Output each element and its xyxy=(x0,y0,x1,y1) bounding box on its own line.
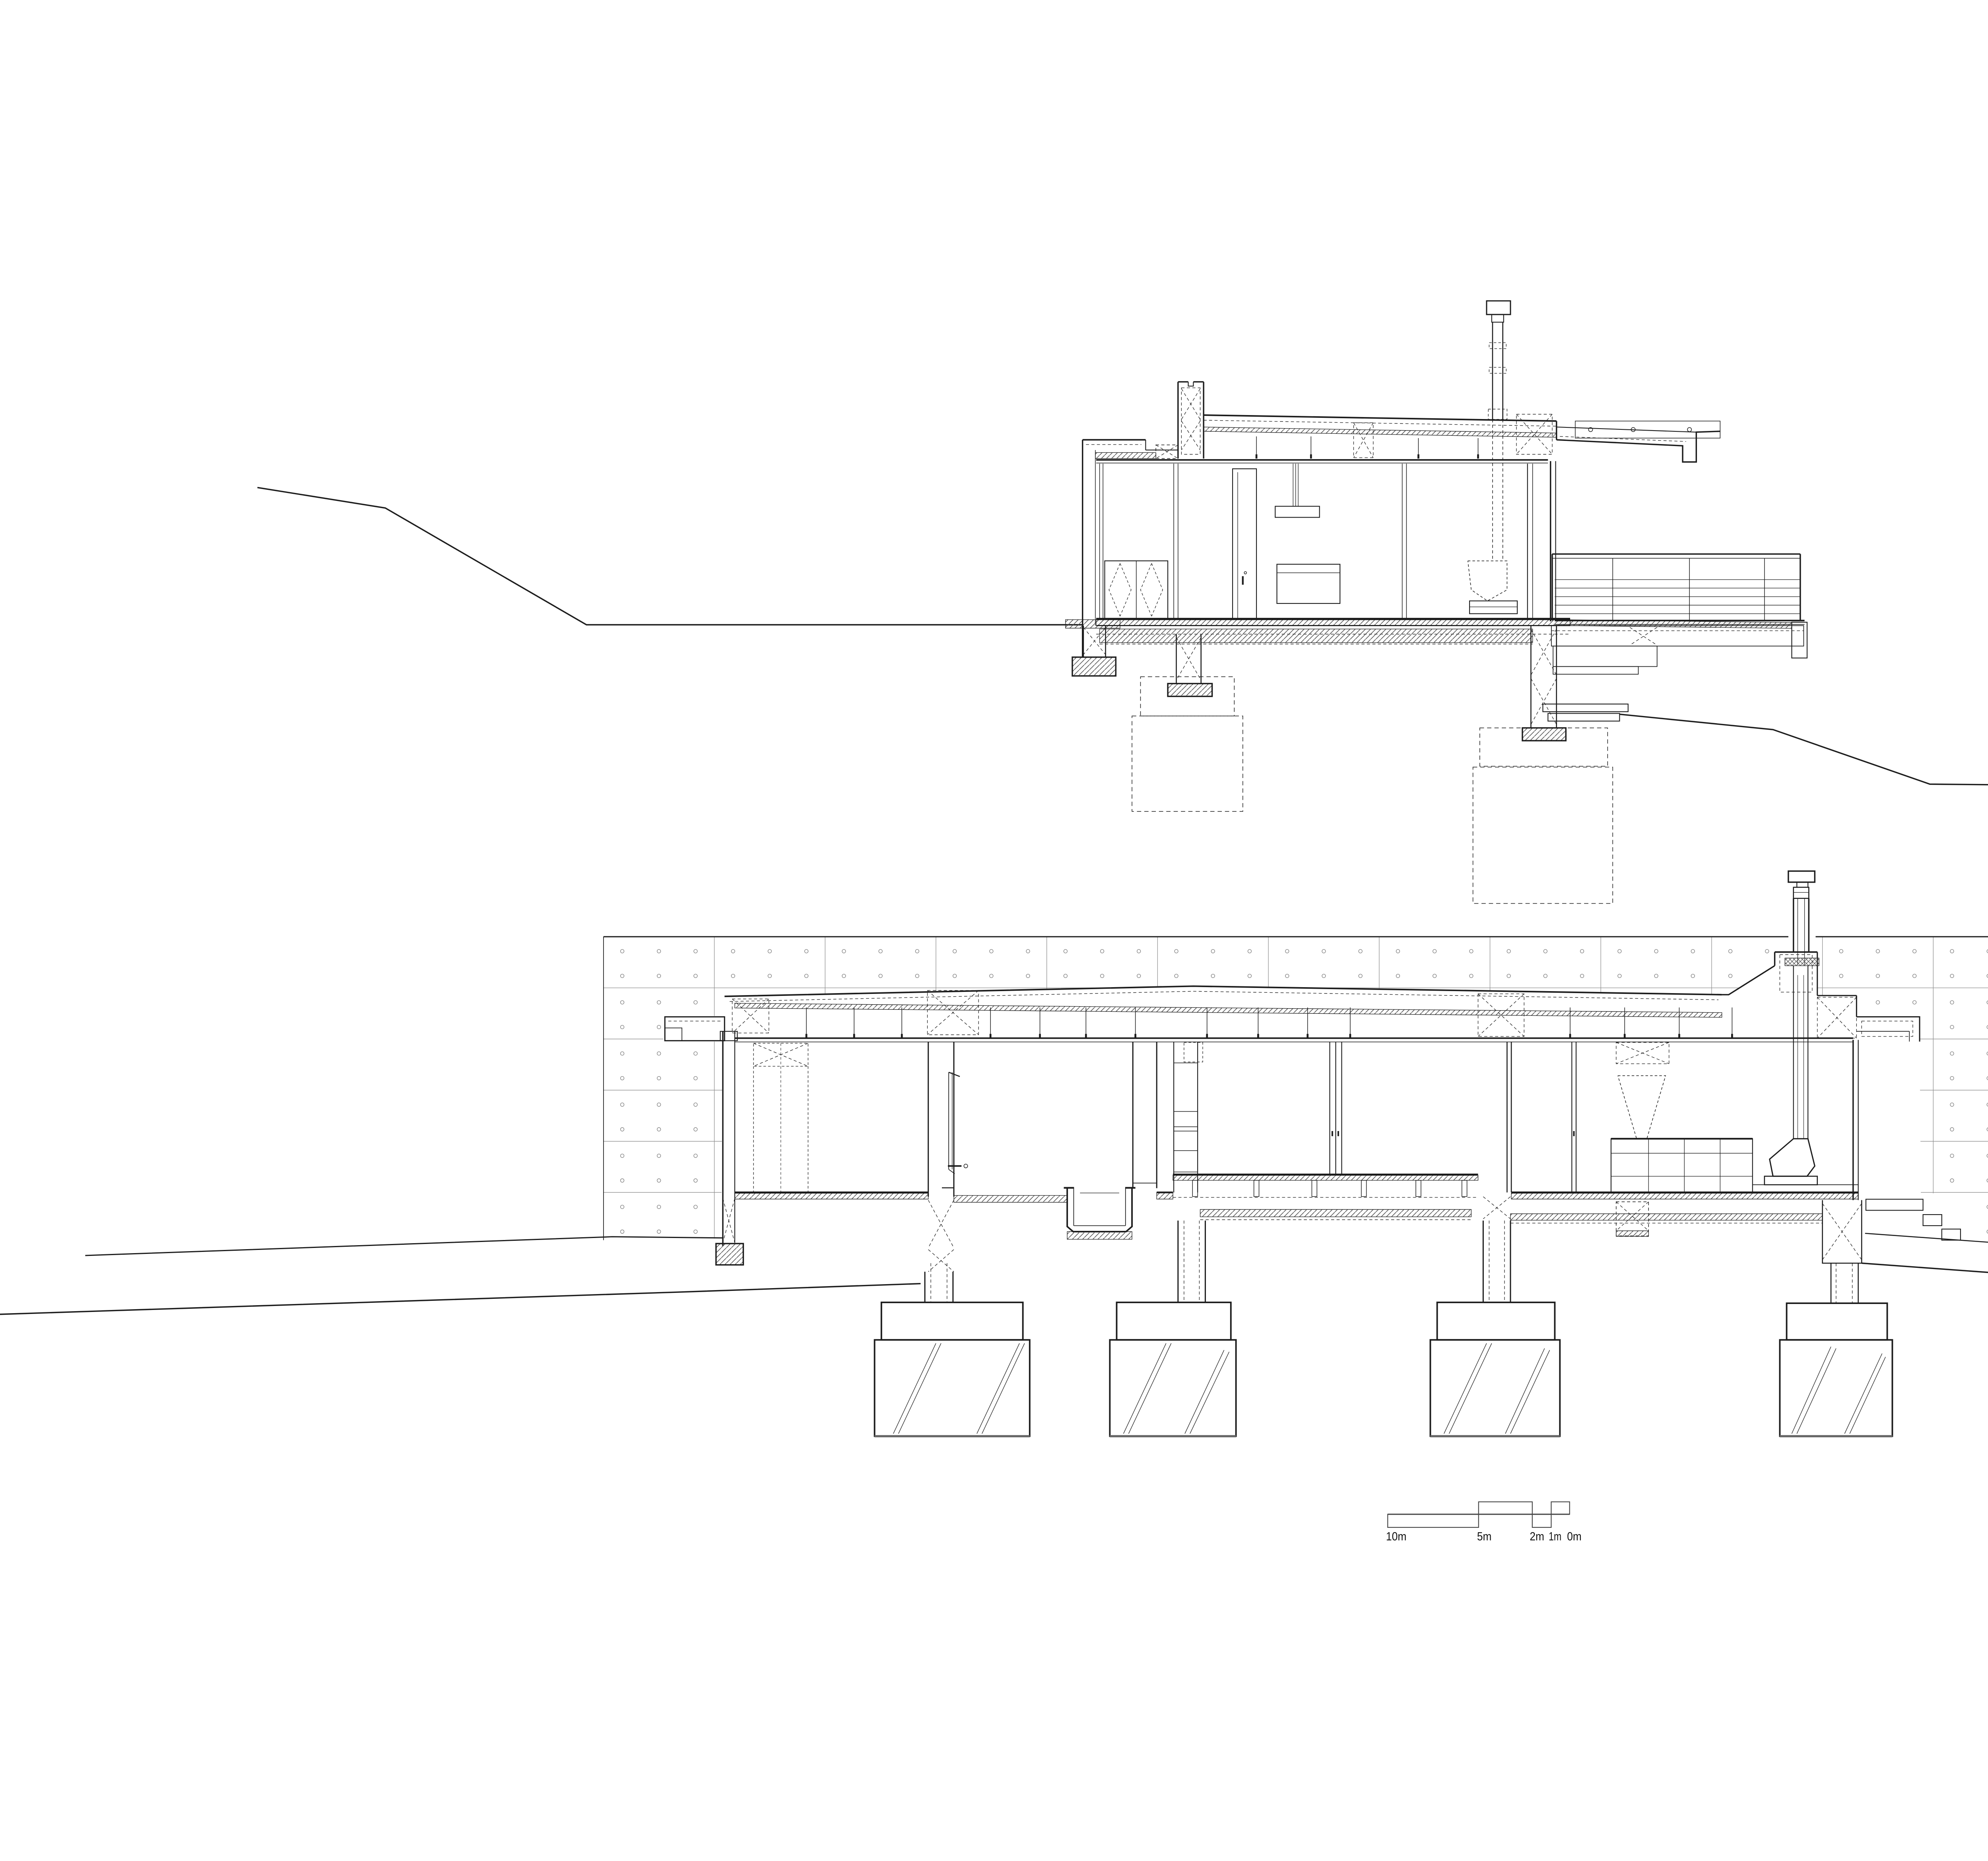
scale-label-1m: 1m xyxy=(1549,1530,1561,1543)
architectural-section-drawing: 10m5m2m1m0m xyxy=(0,0,1988,1861)
scale-label-0m: 0m xyxy=(1567,1530,1581,1543)
scale-label-2m: 2m xyxy=(1530,1530,1544,1543)
paper-background xyxy=(0,0,1988,1861)
scale-label-5m: 5m xyxy=(1477,1530,1491,1543)
scale-label-10m: 10m xyxy=(1386,1530,1406,1543)
